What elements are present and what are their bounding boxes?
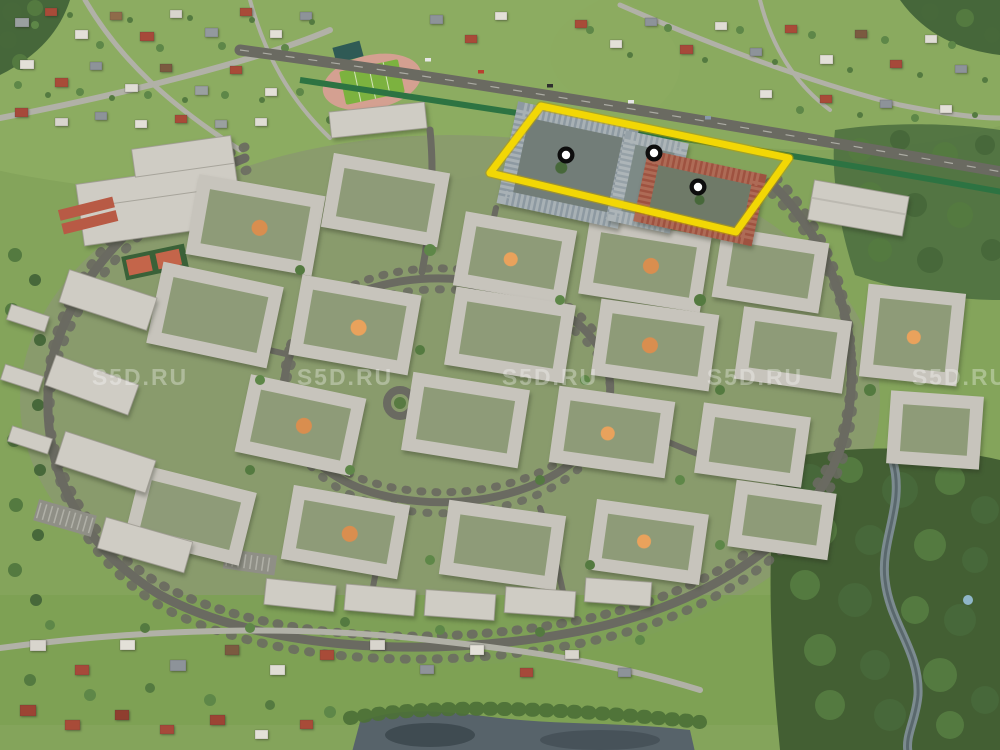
watermark: S5D.RU (502, 364, 598, 390)
car (547, 84, 553, 88)
building-marker-2[interactable] (646, 145, 663, 162)
car (425, 58, 431, 62)
watermark: S5D.RU (707, 364, 803, 390)
car (628, 100, 634, 104)
building-marker-1[interactable] (558, 147, 575, 164)
car (478, 70, 484, 74)
watermark: S5D.RU (92, 364, 188, 390)
masterplan-render: S5D.RU S5D.RU S5D.RU S5D.RU S5D.RU (0, 0, 1000, 750)
car (705, 116, 711, 120)
building-marker-3[interactable] (690, 179, 707, 196)
watermark: S5D.RU (297, 364, 393, 390)
watermark: S5D.RU (912, 364, 1000, 390)
pool (963, 595, 973, 605)
masterplan-viewport: S5D.RU S5D.RU S5D.RU S5D.RU S5D.RU (0, 0, 1000, 750)
